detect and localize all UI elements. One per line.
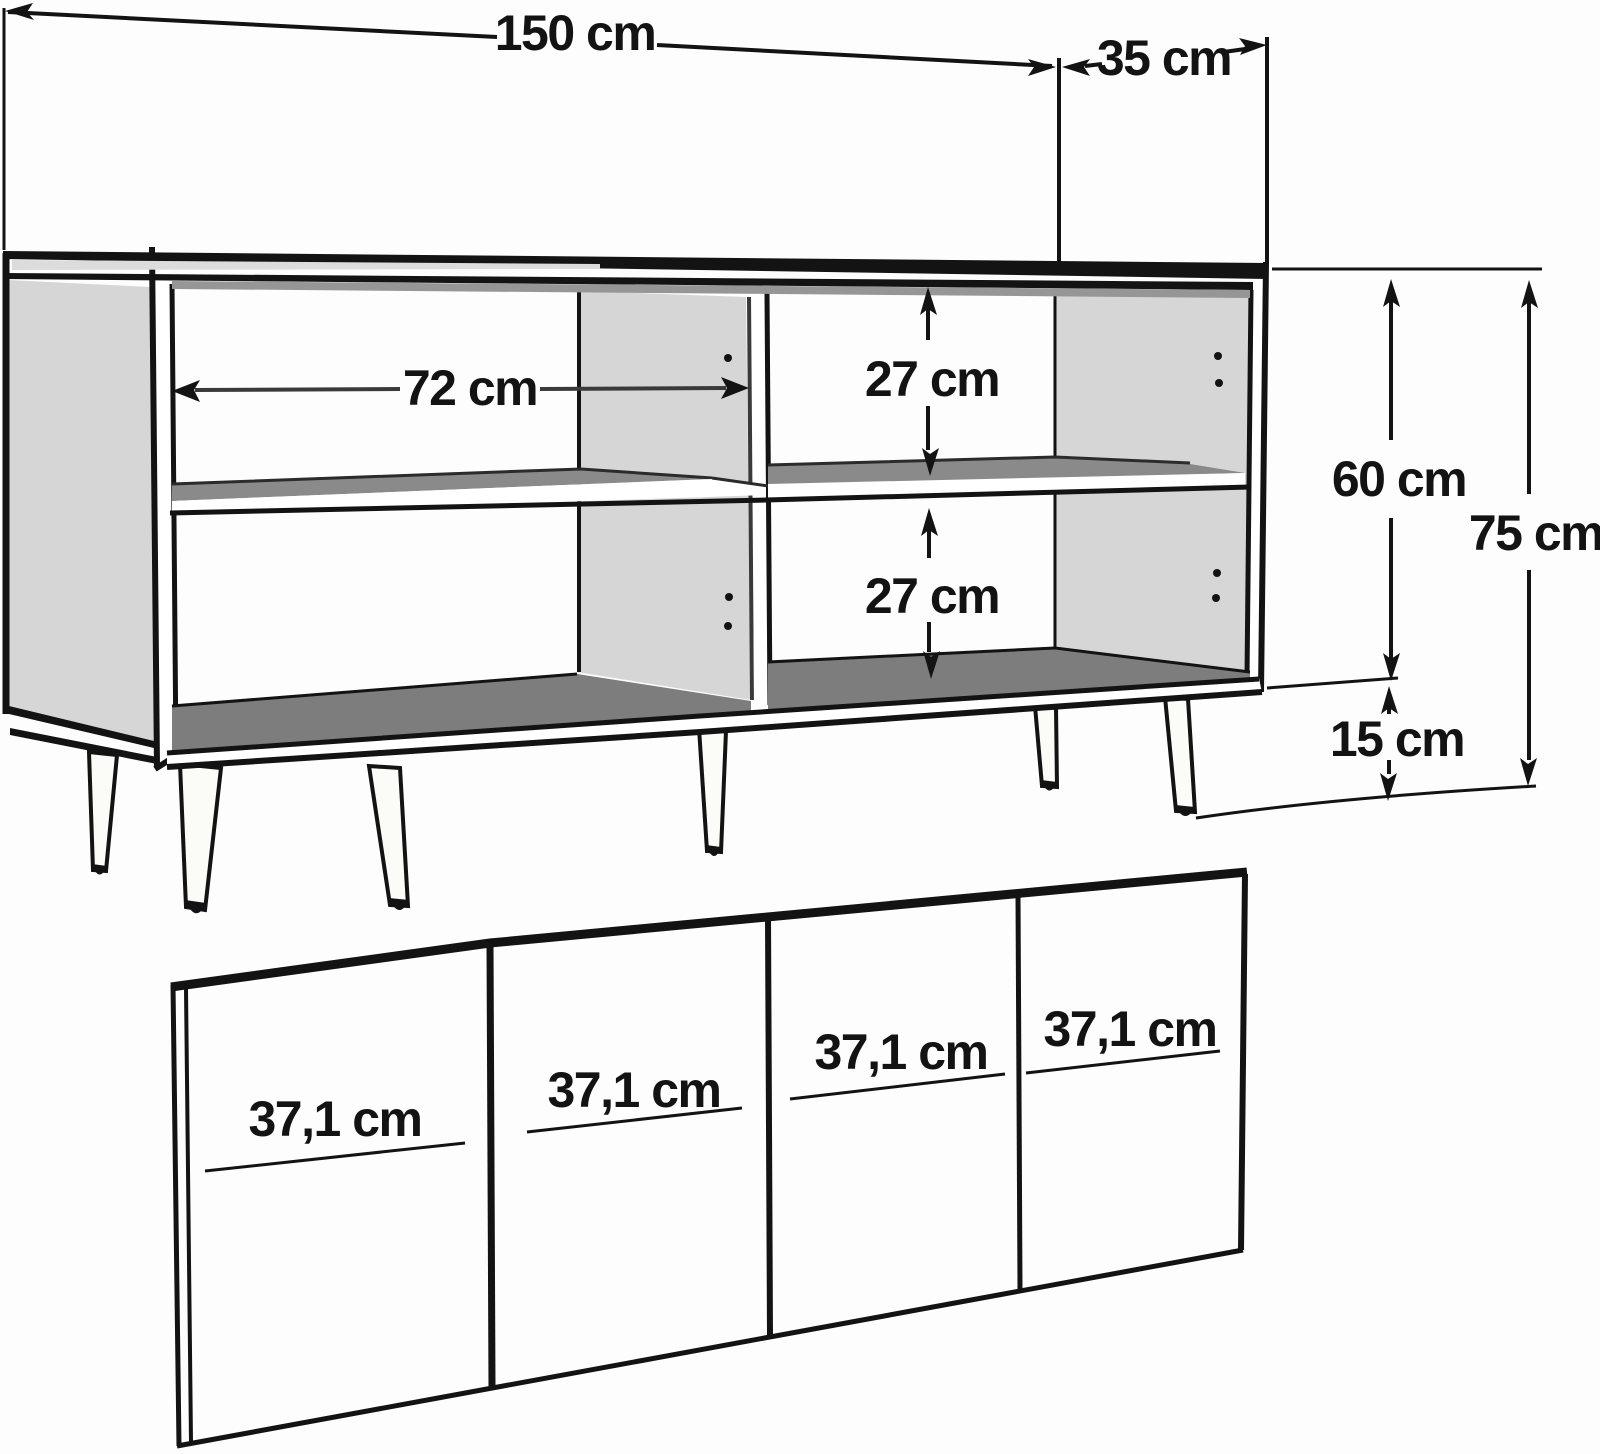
svg-text:37,1 cm: 37,1 cm: [249, 1091, 422, 1147]
svg-text:35 cm: 35 cm: [1097, 30, 1231, 86]
svg-text:27 cm: 27 cm: [865, 351, 999, 407]
svg-text:75 cm: 75 cm: [1469, 505, 1600, 561]
svg-text:37,1 cm: 37,1 cm: [548, 1062, 721, 1118]
svg-text:60 cm: 60 cm: [1332, 451, 1466, 507]
svg-text:72 cm: 72 cm: [403, 360, 537, 416]
svg-text:37,1 cm: 37,1 cm: [1044, 1001, 1217, 1057]
svg-text:37,1 cm: 37,1 cm: [815, 1024, 988, 1080]
svg-text:27 cm: 27 cm: [865, 568, 999, 624]
svg-text:150 cm: 150 cm: [495, 5, 656, 61]
svg-text:15 cm: 15 cm: [1330, 711, 1464, 767]
